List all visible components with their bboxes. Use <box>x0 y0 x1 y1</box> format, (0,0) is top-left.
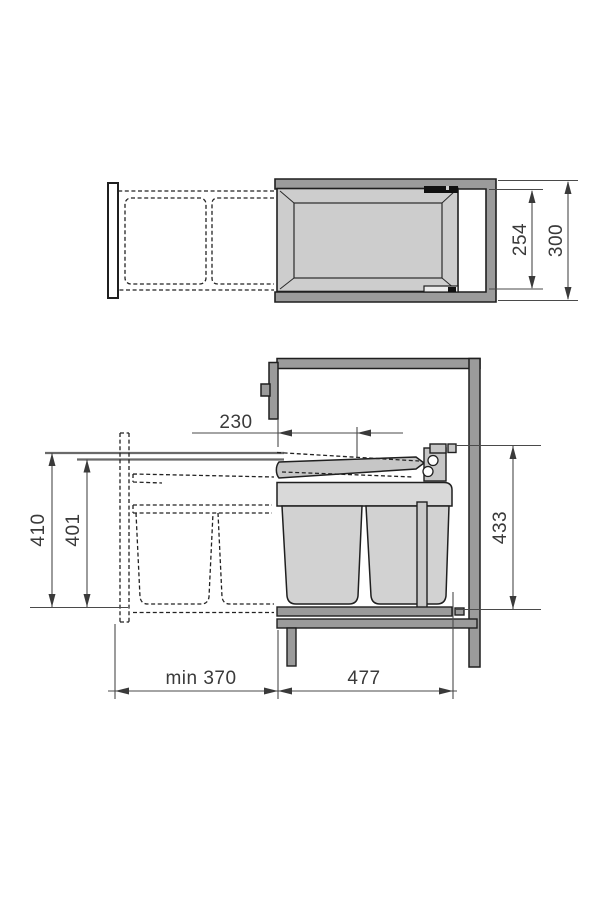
bin-right-dashed-side <box>218 513 274 604</box>
top-view: 254 300 <box>108 179 578 302</box>
dim-label-401: 401 <box>63 513 84 546</box>
bin-right-dashed-top <box>212 198 274 284</box>
dimension-230: 230 <box>192 412 403 457</box>
cabinet-leg <box>287 628 296 666</box>
technical-drawing-page: 254 300 <box>0 0 600 900</box>
technical-drawing: 254 300 <box>0 0 600 900</box>
slide-rail-front-notch <box>446 186 449 190</box>
dim-label-min-370: min 370 <box>165 668 236 689</box>
bracket-pin <box>448 444 456 453</box>
dim-label-300: 300 <box>546 224 567 257</box>
bracket-roller-lower <box>423 467 433 477</box>
dim-label-433: 433 <box>490 511 511 544</box>
dimension-401: 401 <box>63 460 91 608</box>
platform-dashed-extended <box>133 505 272 513</box>
pullout-frame-dashed <box>118 191 275 290</box>
waste-bin-right <box>366 506 449 604</box>
door-panel-top-view <box>108 183 118 298</box>
slide-rail-back-stop <box>448 287 456 292</box>
door-dashed-open <box>120 433 129 622</box>
dim-label-410: 410 <box>28 513 49 546</box>
side-view: 230 410 401 433 <box>28 359 541 700</box>
dim-label-254: 254 <box>510 223 531 256</box>
tray-top-view <box>277 189 458 292</box>
hinge-block <box>261 384 270 396</box>
dim-label-477: 477 <box>347 668 380 689</box>
dimension-inner-width: 254 <box>489 190 543 290</box>
base-rail-upper <box>277 607 452 616</box>
cabinet-top-panel <box>277 359 480 369</box>
dimension-min-370: min 370 <box>108 624 457 699</box>
dim-label-230: 230 <box>219 412 252 433</box>
support-column <box>417 502 427 609</box>
bin-left-dashed-top <box>125 198 206 284</box>
slide-rail-front <box>424 186 458 193</box>
lid-dashed-extended <box>133 474 274 483</box>
base-rail-lower <box>277 619 477 628</box>
mount-bracket <box>423 444 456 481</box>
bin-left-dashed-side <box>136 513 213 604</box>
bracket-roller-upper <box>428 456 438 466</box>
waste-bin-left <box>282 506 362 604</box>
